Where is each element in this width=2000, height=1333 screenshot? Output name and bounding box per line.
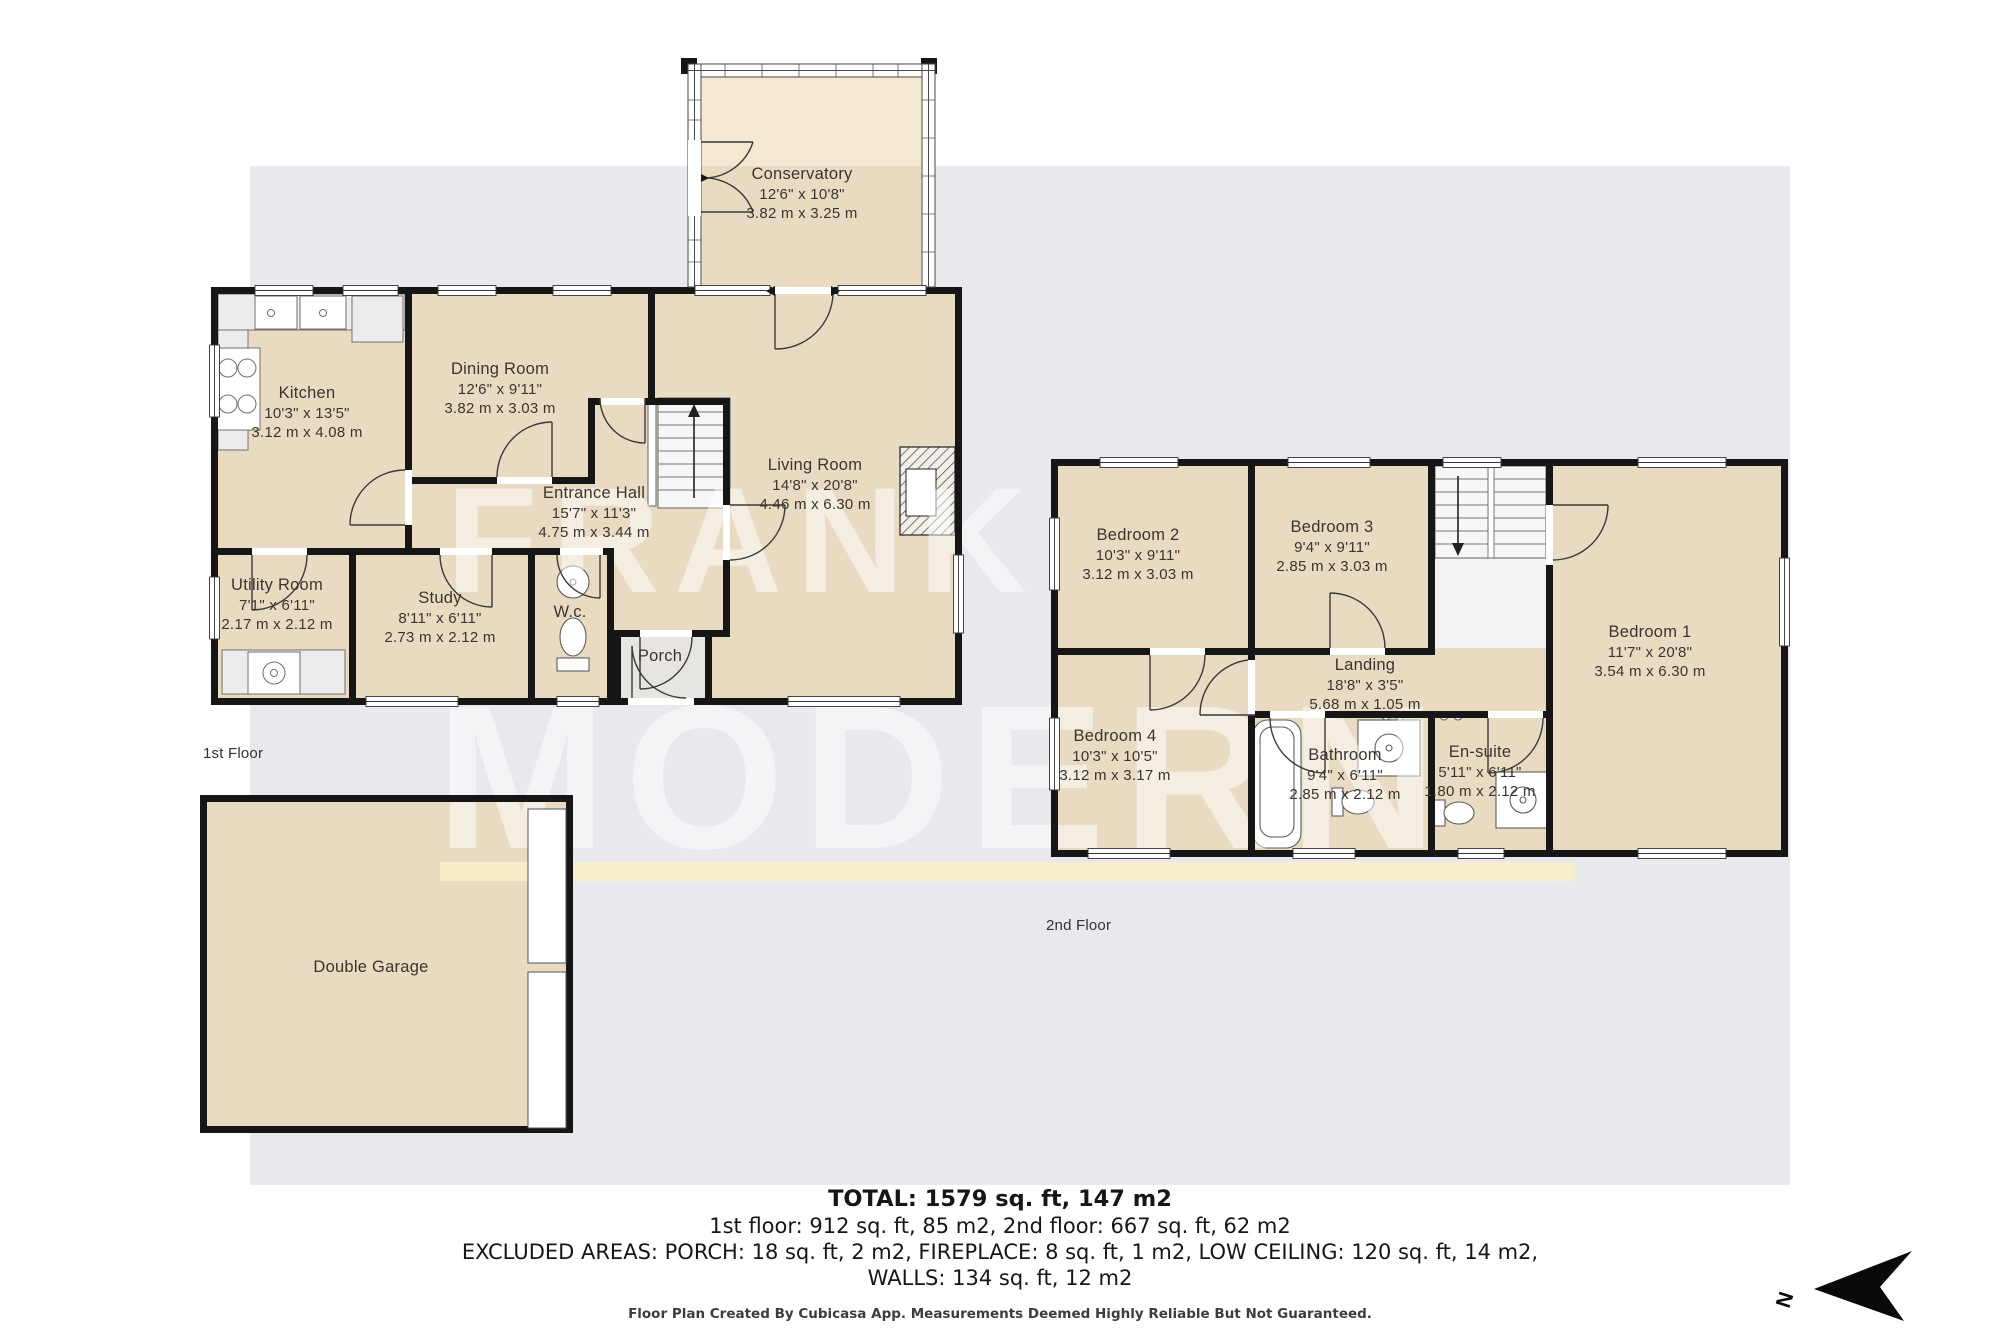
summary-total: TOTAL: 1579 sq. ft, 147 m2	[0, 1186, 2000, 1213]
area-summary: TOTAL: 1579 sq. ft, 147 m2 1st floor: 91…	[0, 1186, 2000, 1291]
compass-icon	[1792, 1243, 1922, 1333]
floor-plan-page: FRANK MODERN	[0, 0, 2000, 1333]
stove-icon	[214, 348, 260, 430]
summary-excluded: EXCLUDED AREAS: PORCH: 18 sq. ft, 2 m2, …	[0, 1239, 2000, 1265]
footer-disclaimer: Floor Plan Created By Cubicasa App. Meas…	[0, 1306, 2000, 1322]
utility-fixtures	[222, 650, 345, 694]
summary-walls: WALLS: 134 sq. ft, 12 m2	[0, 1265, 2000, 1291]
first-floor-label: 1st Floor	[203, 745, 263, 762]
floor-plan-drawing: FRANK MODERN	[0, 0, 2000, 1333]
second-floor-label: 2nd Floor	[1046, 917, 1111, 934]
summary-floors: 1st floor: 912 sq. ft, 85 m2, 2nd floor:…	[0, 1213, 2000, 1239]
stairs-second-floor-icon	[1435, 466, 1546, 558]
